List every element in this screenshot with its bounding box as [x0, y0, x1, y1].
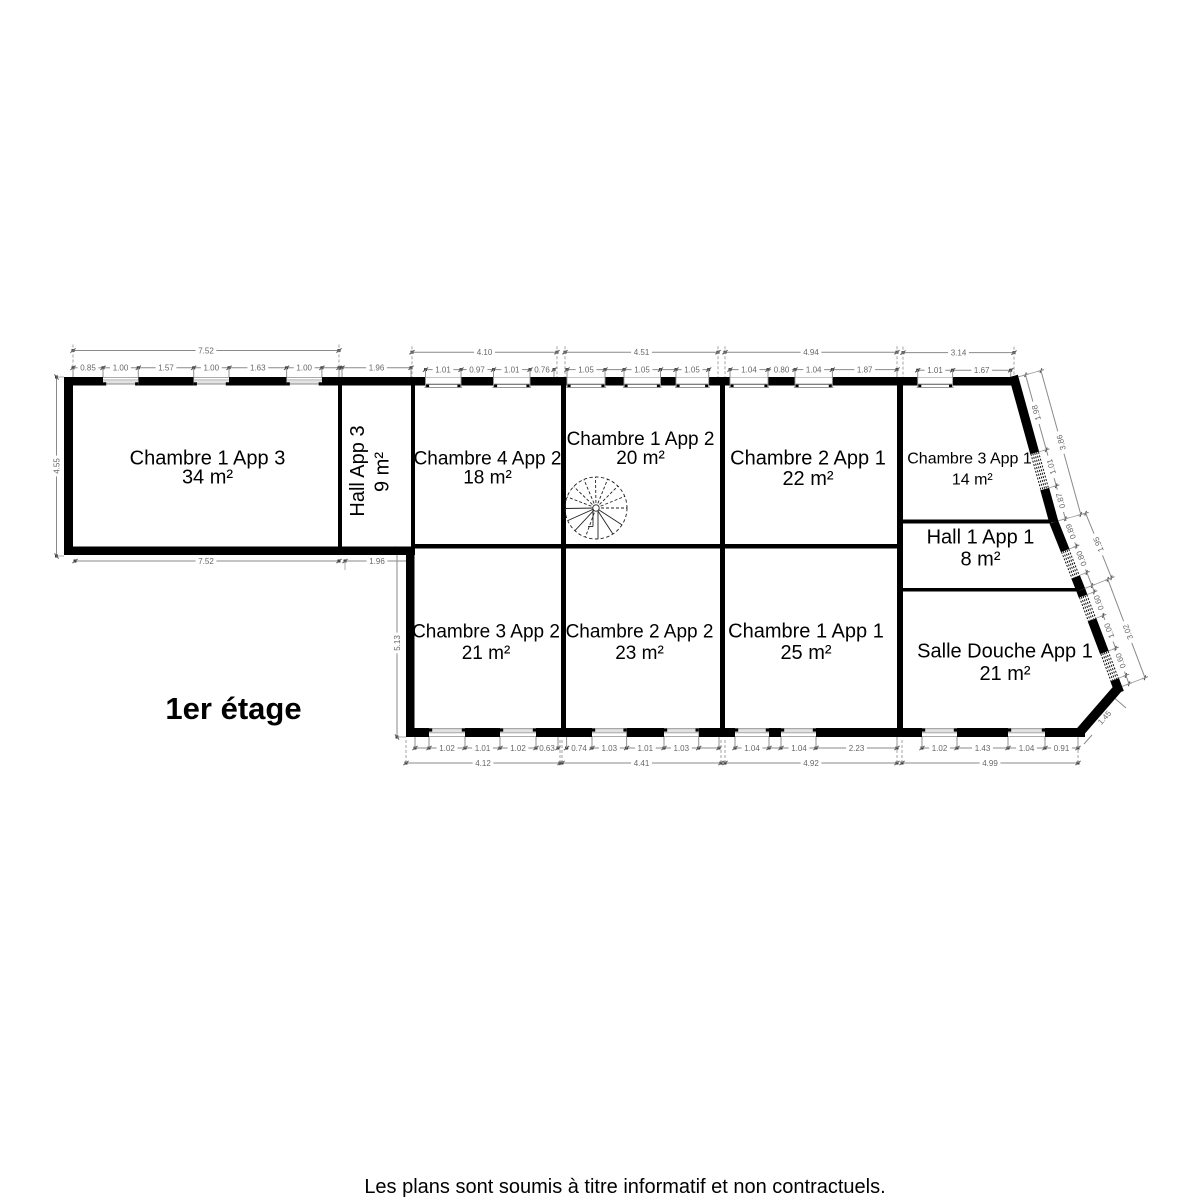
svg-text:Chambre 1 App 2: Chambre 1 App 2 [567, 429, 715, 450]
svg-text:1.01: 1.01 [638, 744, 654, 753]
svg-text:Chambre 2 App 2: Chambre 2 App 2 [566, 622, 714, 643]
svg-text:1.43: 1.43 [975, 744, 991, 753]
svg-text:Chambre 4 App 2: Chambre 4 App 2 [414, 449, 562, 470]
svg-text:7.52: 7.52 [198, 346, 214, 355]
svg-text:Chambre 2 App 1: Chambre 2 App 1 [730, 448, 886, 470]
svg-text:1.87: 1.87 [857, 366, 873, 375]
svg-text:Les plans sont soumis à titre: Les plans sont soumis à titre informatif… [364, 1176, 885, 1198]
svg-text:Salle Douche App 1: Salle Douche App 1 [917, 641, 1093, 663]
svg-text:1.01: 1.01 [504, 366, 520, 375]
svg-text:1.00: 1.00 [296, 364, 312, 373]
svg-text:1.04: 1.04 [744, 744, 760, 753]
svg-text:1er étage: 1er étage [165, 691, 301, 726]
svg-text:4.12: 4.12 [475, 759, 491, 768]
svg-text:1.02: 1.02 [510, 744, 526, 753]
svg-text:14 m²: 14 m² [952, 472, 994, 489]
svg-text:21 m²: 21 m² [462, 643, 511, 664]
svg-text:0.91: 0.91 [1054, 744, 1070, 753]
svg-text:4.10: 4.10 [477, 348, 493, 357]
svg-text:0.74: 0.74 [571, 744, 587, 753]
svg-text:7.52: 7.52 [198, 557, 214, 566]
svg-text:Hall App 3: Hall App 3 [347, 425, 369, 516]
svg-text:4.55: 4.55 [53, 458, 62, 474]
svg-text:22 m²: 22 m² [782, 468, 833, 490]
svg-text:23 m²: 23 m² [615, 643, 664, 664]
svg-text:18 m²: 18 m² [463, 468, 512, 489]
svg-text:4.99: 4.99 [982, 759, 998, 768]
svg-text:1.00: 1.00 [204, 364, 220, 373]
svg-text:4.41: 4.41 [634, 759, 650, 768]
svg-text:1.03: 1.03 [602, 744, 618, 753]
svg-text:8 m²: 8 m² [961, 549, 1001, 571]
svg-text:1.03: 1.03 [674, 744, 690, 753]
svg-text:1.96: 1.96 [369, 557, 385, 566]
svg-text:0.97: 0.97 [469, 366, 485, 375]
svg-text:1.05: 1.05 [578, 366, 594, 375]
svg-text:9 m²: 9 m² [372, 452, 394, 492]
svg-text:0.76: 0.76 [534, 366, 550, 375]
svg-text:2.23: 2.23 [849, 744, 865, 753]
svg-text:1.63: 1.63 [250, 364, 266, 373]
svg-text:4.92: 4.92 [803, 759, 819, 768]
svg-text:1.57: 1.57 [158, 364, 174, 373]
svg-text:1.04: 1.04 [1019, 744, 1035, 753]
svg-text:Chambre 3 App 2: Chambre 3 App 2 [412, 622, 560, 643]
svg-text:Chambre 1 App 1: Chambre 1 App 1 [728, 621, 884, 643]
svg-text:4.51: 4.51 [634, 348, 650, 357]
svg-text:1.96: 1.96 [369, 364, 385, 373]
svg-text:25 m²: 25 m² [780, 642, 831, 664]
svg-text:1.00: 1.00 [113, 364, 129, 373]
svg-text:34 m²: 34 m² [182, 467, 233, 489]
svg-text:1.01: 1.01 [475, 744, 491, 753]
svg-text:1.67: 1.67 [974, 366, 990, 375]
svg-text:1.04: 1.04 [806, 366, 822, 375]
svg-text:21 m²: 21 m² [979, 663, 1030, 685]
svg-text:5.13: 5.13 [393, 635, 402, 651]
svg-text:1.05: 1.05 [684, 366, 700, 375]
svg-text:20 m²: 20 m² [616, 448, 665, 469]
svg-text:1.04: 1.04 [741, 366, 757, 375]
svg-text:1.02: 1.02 [439, 744, 455, 753]
svg-text:0.85: 0.85 [80, 364, 96, 373]
svg-text:0.80: 0.80 [774, 366, 790, 375]
svg-text:1.04: 1.04 [791, 744, 807, 753]
svg-text:Chambre 3 App 1: Chambre 3 App 1 [907, 451, 1032, 468]
svg-text:4.94: 4.94 [803, 348, 819, 357]
svg-text:1.01: 1.01 [435, 366, 451, 375]
svg-text:0.63: 0.63 [539, 744, 555, 753]
svg-text:3.14: 3.14 [951, 349, 967, 358]
svg-text:1.05: 1.05 [634, 366, 650, 375]
svg-text:1.02: 1.02 [932, 744, 948, 753]
svg-text:1.01: 1.01 [927, 366, 943, 375]
svg-text:Hall 1 App 1: Hall 1 App 1 [927, 527, 1035, 549]
